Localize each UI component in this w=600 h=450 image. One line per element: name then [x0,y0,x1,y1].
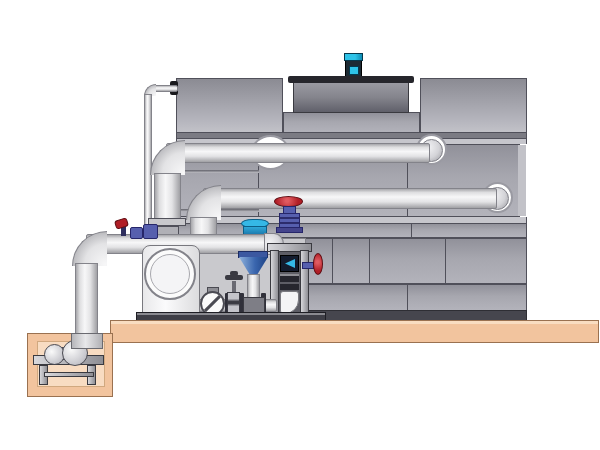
tower-top-left-box [176,78,283,133]
upper-pipe-elbow [150,140,185,175]
header-valve-small-2 [143,224,158,239]
tower-panel [332,238,371,284]
tower-panel [445,238,527,284]
column-panel-b [280,284,299,290]
side-valve-handwheel [313,253,323,275]
column-post-right [300,250,309,318]
tower-band-dark [176,132,527,139]
separator-flange [238,251,268,258]
upper-pipe-riser [154,173,181,222]
gate-valve-knob [230,271,238,276]
fan-cowl-drum [293,83,409,113]
gate-valve-body [227,292,240,313]
lever-valve-handle [114,217,129,230]
upper-pipe-run [166,143,430,163]
globe-valve-base-flange [276,227,303,233]
drop-pipe-coupling [71,333,103,349]
suction-pipe-elbow [72,231,107,266]
lever-valve-stem [121,227,126,236]
small-line-vertical [144,94,152,228]
sump-stand-shelf [44,372,94,377]
suction-drop-pipe [75,263,98,338]
separator-foot-fitting [243,297,265,313]
tower-groove [178,170,259,173]
tower-panel [407,284,527,311]
fan-cowl-rim [288,76,414,83]
pump-face-inner [150,254,190,294]
globe-valve-body [279,213,300,228]
lower-pipe-run [203,188,497,209]
column-panel-a [280,274,299,282]
equipment-diagram [0,0,600,450]
concrete-pad [110,320,599,343]
tower-mid-shelf [283,112,420,134]
motor-cap [344,53,363,61]
tower-panel [411,223,527,238]
motor-window [349,66,359,75]
header-valve-small-1 [130,227,143,239]
tower-top-right-box [420,78,527,133]
tower-panel [369,238,447,284]
tower-edge-highlight [518,145,526,216]
